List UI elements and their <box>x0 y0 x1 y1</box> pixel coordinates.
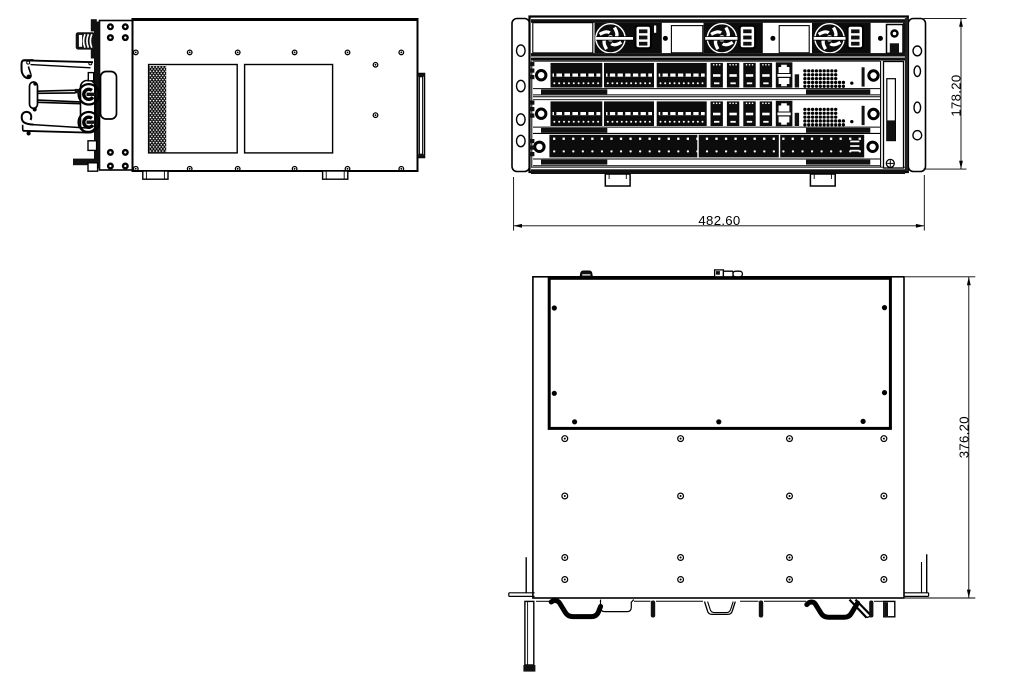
svg-text:482.60: 482.60 <box>698 213 740 228</box>
svg-text:178.20: 178.20 <box>949 75 964 117</box>
svg-text:376.20: 376.20 <box>956 416 971 458</box>
